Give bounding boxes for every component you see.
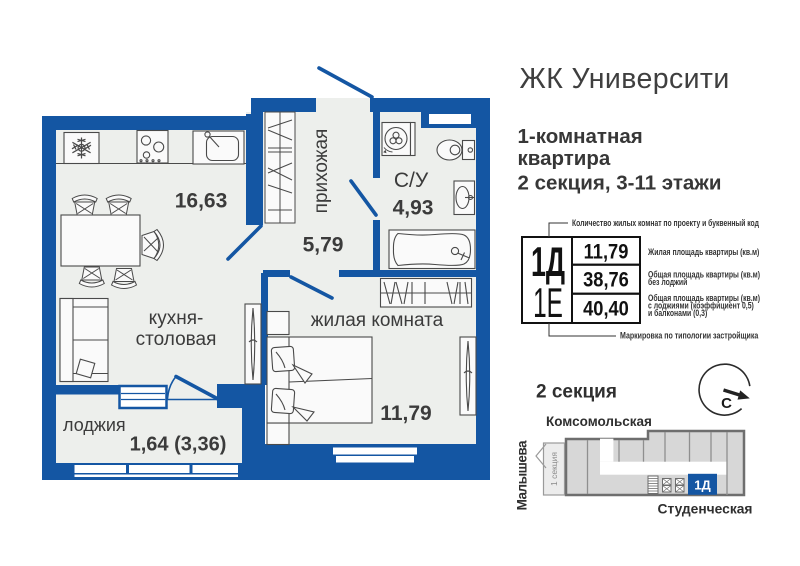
svg-text:2 секция: 2 секция — [536, 382, 617, 403]
svg-text:11,79: 11,79 — [584, 240, 629, 264]
svg-text:4,93: 4,93 — [393, 197, 434, 220]
svg-text:1,64 (3,36): 1,64 (3,36) — [130, 434, 227, 456]
svg-text:Количество жилых комнат по про: Количество жилых комнат по проекту и бук… — [572, 218, 759, 228]
svg-text:Студенческая: Студенческая — [658, 502, 753, 517]
svg-text:1Е: 1Е — [533, 280, 563, 326]
svg-text:Комсомольская: Комсомольская — [546, 414, 652, 429]
svg-text:столовая: столовая — [136, 329, 217, 350]
svg-text:ЖК Университи: ЖК Университи — [520, 63, 730, 95]
svg-text:1Д: 1Д — [531, 239, 565, 285]
svg-text:2 секция, 3-11 этажи: 2 секция, 3-11 этажи — [518, 172, 722, 195]
svg-text:без лоджий: без лоджий — [648, 277, 687, 287]
svg-text:Маркировка по типологии застро: Маркировка по типологии застройщика — [620, 331, 759, 341]
svg-text:Жилая площадь квартиры (кв.м): Жилая площадь квартиры (кв.м) — [647, 247, 759, 257]
svg-text:1Д: 1Д — [694, 478, 711, 493]
svg-text:квартира: квартира — [518, 147, 611, 170]
svg-text:лоджия: лоджия — [63, 415, 126, 435]
svg-text:С: С — [721, 395, 732, 412]
svg-text:Малышева: Малышева — [515, 440, 530, 510]
svg-text:жилая комната: жилая комната — [311, 310, 444, 331]
svg-text:5,79: 5,79 — [303, 234, 344, 257]
svg-text:кухня-: кухня- — [149, 308, 204, 329]
svg-text:прихожая: прихожая — [311, 129, 332, 214]
svg-text:и балконами (0,3): и балконами (0,3) — [648, 308, 708, 318]
svg-text:38,76: 38,76 — [583, 268, 629, 292]
svg-text:16,63: 16,63 — [175, 190, 228, 213]
svg-text:С/У: С/У — [394, 169, 429, 192]
svg-text:1-комнатная: 1-комнатная — [518, 125, 643, 148]
svg-text:40,40: 40,40 — [583, 297, 629, 321]
svg-text:1 секция: 1 секция — [549, 452, 559, 486]
svg-text:11,79: 11,79 — [380, 402, 431, 425]
